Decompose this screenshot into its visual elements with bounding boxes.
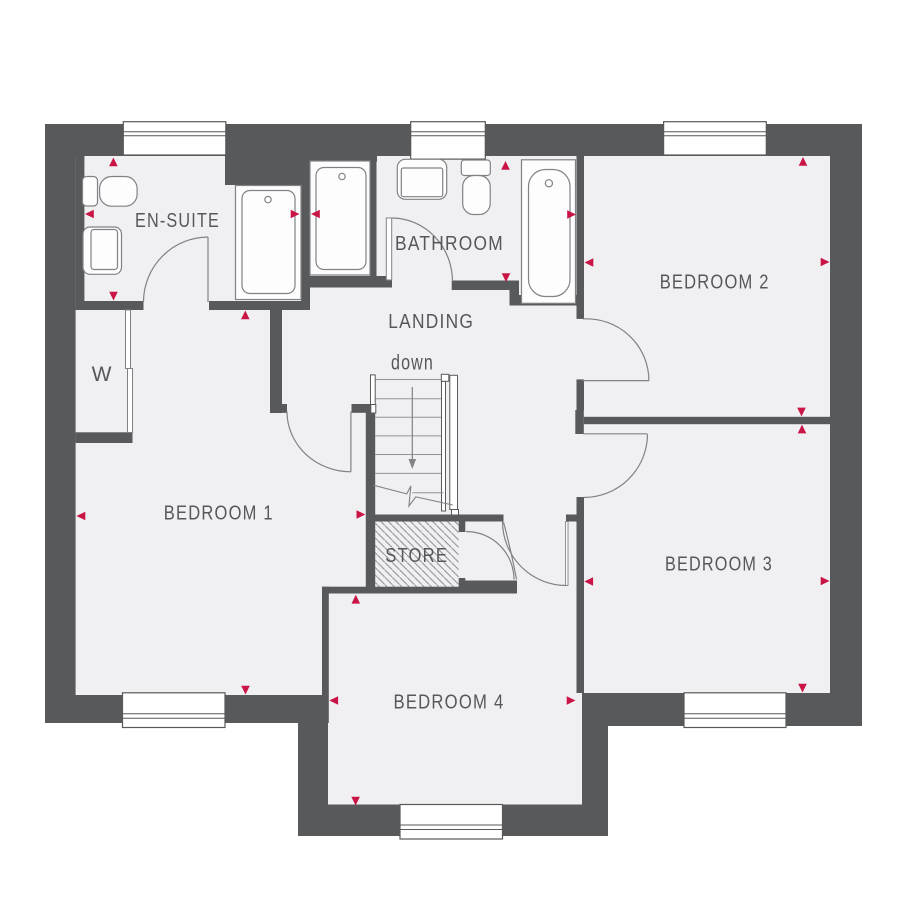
svg-text:EN-SUITE: EN-SUITE	[135, 209, 220, 232]
svg-text:STORE: STORE	[385, 544, 448, 567]
svg-text:BEDROOM 2: BEDROOM 2	[660, 271, 770, 294]
svg-text:BATHROOM: BATHROOM	[395, 232, 504, 255]
svg-text:BEDROOM 1: BEDROOM 1	[164, 502, 274, 525]
svg-text:down: down	[391, 352, 434, 375]
svg-text:W: W	[92, 363, 113, 386]
svg-text:BEDROOM 4: BEDROOM 4	[394, 691, 505, 714]
svg-text:LANDING: LANDING	[388, 310, 474, 333]
svg-text:BEDROOM 3: BEDROOM 3	[665, 553, 773, 576]
